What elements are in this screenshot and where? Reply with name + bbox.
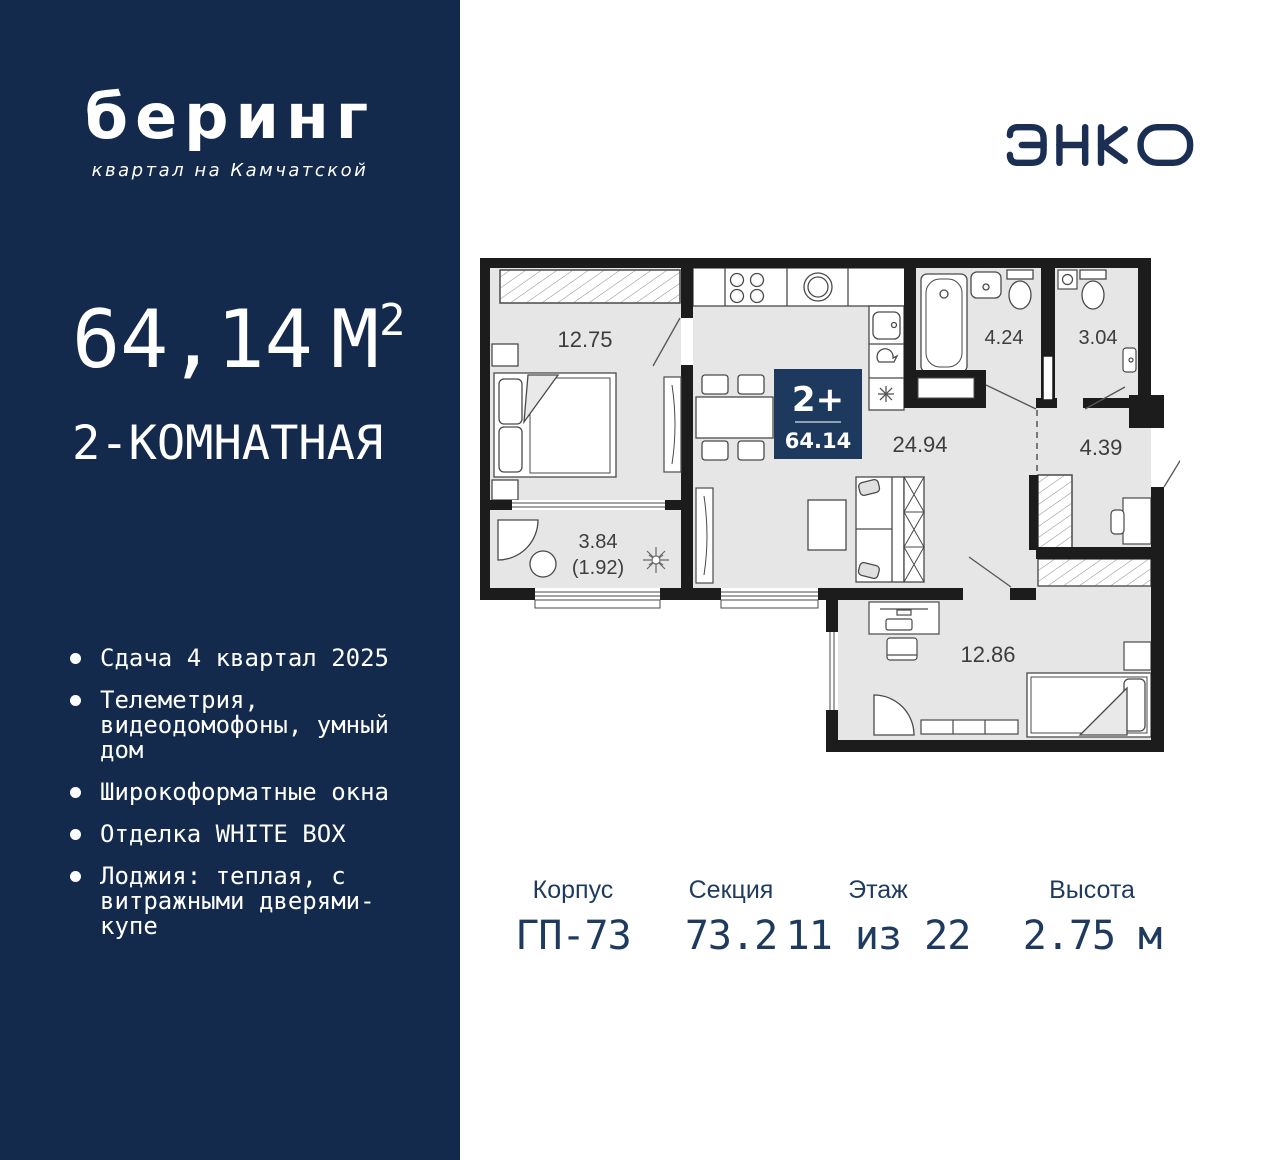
washing-machine-furniture: [1058, 270, 1077, 289]
apartment-card: беринг квартал на Камчатской 64,14М2 2-К…: [0, 0, 1280, 1160]
room-label-loggia: 3.84: [579, 531, 618, 553]
info-vysota-label: Высота: [1023, 876, 1162, 905]
info-korpus: Корпус ГП-73: [515, 876, 630, 959]
bullet-icon: [70, 695, 81, 706]
badge-rooms: 2+: [792, 380, 844, 420]
info-korpus-label: Корпус: [515, 876, 630, 905]
info-korpus-value: ГП-73: [515, 913, 630, 959]
brand-logo-title: беринг: [0, 86, 460, 148]
brand-logo-subtitle: квартал на Камчатской: [0, 160, 460, 181]
feature-item: Телеметрия, видеодомофоны, умный дом: [70, 688, 415, 763]
room-label-hall: 4.39: [1080, 435, 1123, 460]
feature-item: Широкоформатные окна: [70, 780, 415, 805]
feature-text: Широкоформатные окна: [100, 780, 389, 805]
room-label-bedroom1: 12.75: [557, 327, 612, 352]
bullet-icon: [70, 787, 81, 798]
info-etazh-label: Этаж: [786, 876, 971, 905]
bullet-icon: [70, 829, 81, 840]
wardrobe-furniture: [500, 270, 680, 303]
feature-item: Отделка WHITE BOX: [70, 822, 415, 847]
info-sektsiya-label: Секция: [685, 876, 777, 905]
brand-logo: беринг квартал на Камчатской: [0, 86, 460, 181]
apartment-area: 64,14М2: [72, 300, 406, 380]
area-unit: М: [331, 293, 379, 386]
room-label-wc: 3.04: [1079, 327, 1118, 349]
info-vysota: Высота 2.75 м: [1023, 876, 1162, 959]
info-etazh: Этаж 11 из 22: [786, 876, 971, 959]
feature-text: Телеметрия, видеодомофоны, умный дом: [100, 688, 415, 763]
bath-sink-furniture: [971, 272, 1001, 298]
single-bed-furniture: [1027, 673, 1151, 737]
badge-area: 64.14: [785, 429, 851, 453]
feature-item: Сдача 4 квартал 2025: [70, 646, 415, 671]
feature-text: Сдача 4 квартал 2025: [100, 646, 389, 671]
wc-sink-furniture: [1123, 348, 1136, 372]
bath-toilet-furniture: [1007, 270, 1033, 309]
floor-plan: 12.75 3.84 (1.92) 24.94 4.24 3.04 4.39 1…: [480, 258, 1180, 763]
room-label-bedroom2: 12.86: [960, 642, 1015, 667]
apartment-type: 2-КОМНАТНАЯ: [72, 420, 383, 467]
developer-logo-icon: [1002, 120, 1200, 170]
area-sup: 2: [379, 295, 406, 346]
sidebar: беринг квартал на Камчатской 64,14М2 2-К…: [0, 0, 460, 1160]
info-sektsiya: Секция 73.2: [685, 876, 777, 959]
rooms-area-badge: 2+ 64.14: [774, 369, 862, 459]
feature-text: Лоджия: теплая, с витражными дверями-куп…: [100, 864, 415, 939]
wc-toilet-furniture: [1080, 270, 1106, 309]
sideboard-furniture: [921, 720, 1018, 734]
hall-wardrobe-furniture: [1038, 475, 1072, 550]
area-value: 64,14: [72, 293, 313, 386]
room-label-living: 24.94: [892, 432, 947, 457]
info-etazh-value: 11 из 22: [786, 913, 971, 959]
info-vysota-value: 2.75 м: [1023, 913, 1162, 959]
bathtub-furniture: [921, 274, 967, 372]
room-label-bathroom: 4.24: [985, 327, 1024, 349]
feature-list: Сдача 4 квартал 2025 Телеметрия, видеодо…: [70, 646, 415, 956]
closet-furniture: [1038, 559, 1151, 586]
bedroom2-wardrobe-furniture: [1124, 642, 1151, 670]
room-label-loggia-half: (1.92): [572, 557, 624, 579]
feature-item: Лоджия: теплая, с витражными дверями-куп…: [70, 864, 415, 939]
bullet-icon: [70, 653, 81, 664]
bullet-icon: [70, 871, 81, 882]
feature-text: Отделка WHITE BOX: [100, 822, 346, 847]
info-sektsiya-value: 73.2: [685, 913, 777, 959]
